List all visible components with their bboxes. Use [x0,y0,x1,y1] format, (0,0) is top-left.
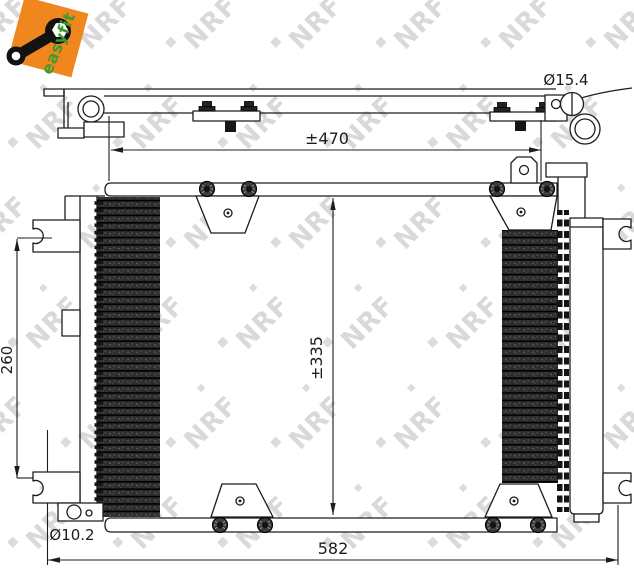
top-view-left-port [78,96,124,137]
bolt-icon [213,518,228,533]
right-fin-core [502,230,558,483]
bolt-icon [540,182,555,197]
bolt-icon [242,182,257,197]
dimension-left-height: 260 [0,238,52,478]
top-view-right-port [545,88,632,144]
right-tube-ends [557,210,569,512]
easyfit-logo: easyfit [0,0,110,100]
top-left-clip [33,220,80,252]
mounting-ear [511,157,537,183]
front-view [33,157,631,533]
core-height-label: ±335 [307,336,326,380]
bolt-icon [494,103,510,113]
bottom-width-label: 582 [318,539,349,558]
dimension-core-height: ±335 [307,198,336,515]
bolt-icon [486,518,501,533]
top-right-clip [603,219,631,249]
bolt-icon [199,102,215,112]
bolt-icon [241,102,257,112]
left-tube-ends [95,199,104,515]
technical-drawing-page: NRFNRFNRFNRFNRFNRFNRFNRFNRFNRFNRFNRFNRFN… [0,0,634,568]
dimension-top-width: ±470 [111,129,541,153]
left-height-label: 260 [0,346,16,375]
bottom-left-clip [33,472,80,503]
dimension-bottom-width: 582 [48,539,618,563]
left-tab [62,310,80,336]
top-view-middle-bracket [193,102,260,133]
bolt-icon [258,518,273,533]
top-port-diameter-label: Ø15.4 [543,71,588,89]
bolt-icon [200,182,215,197]
bottom-right-clip [603,473,631,503]
bottom-port-bracket [58,503,103,521]
bolt-icon [531,518,546,533]
bottom-port-diameter-label: Ø10.2 [49,526,94,544]
left-fin-core [97,197,160,517]
top-width-label: ±470 [305,129,349,148]
bolt-icon [490,182,505,197]
